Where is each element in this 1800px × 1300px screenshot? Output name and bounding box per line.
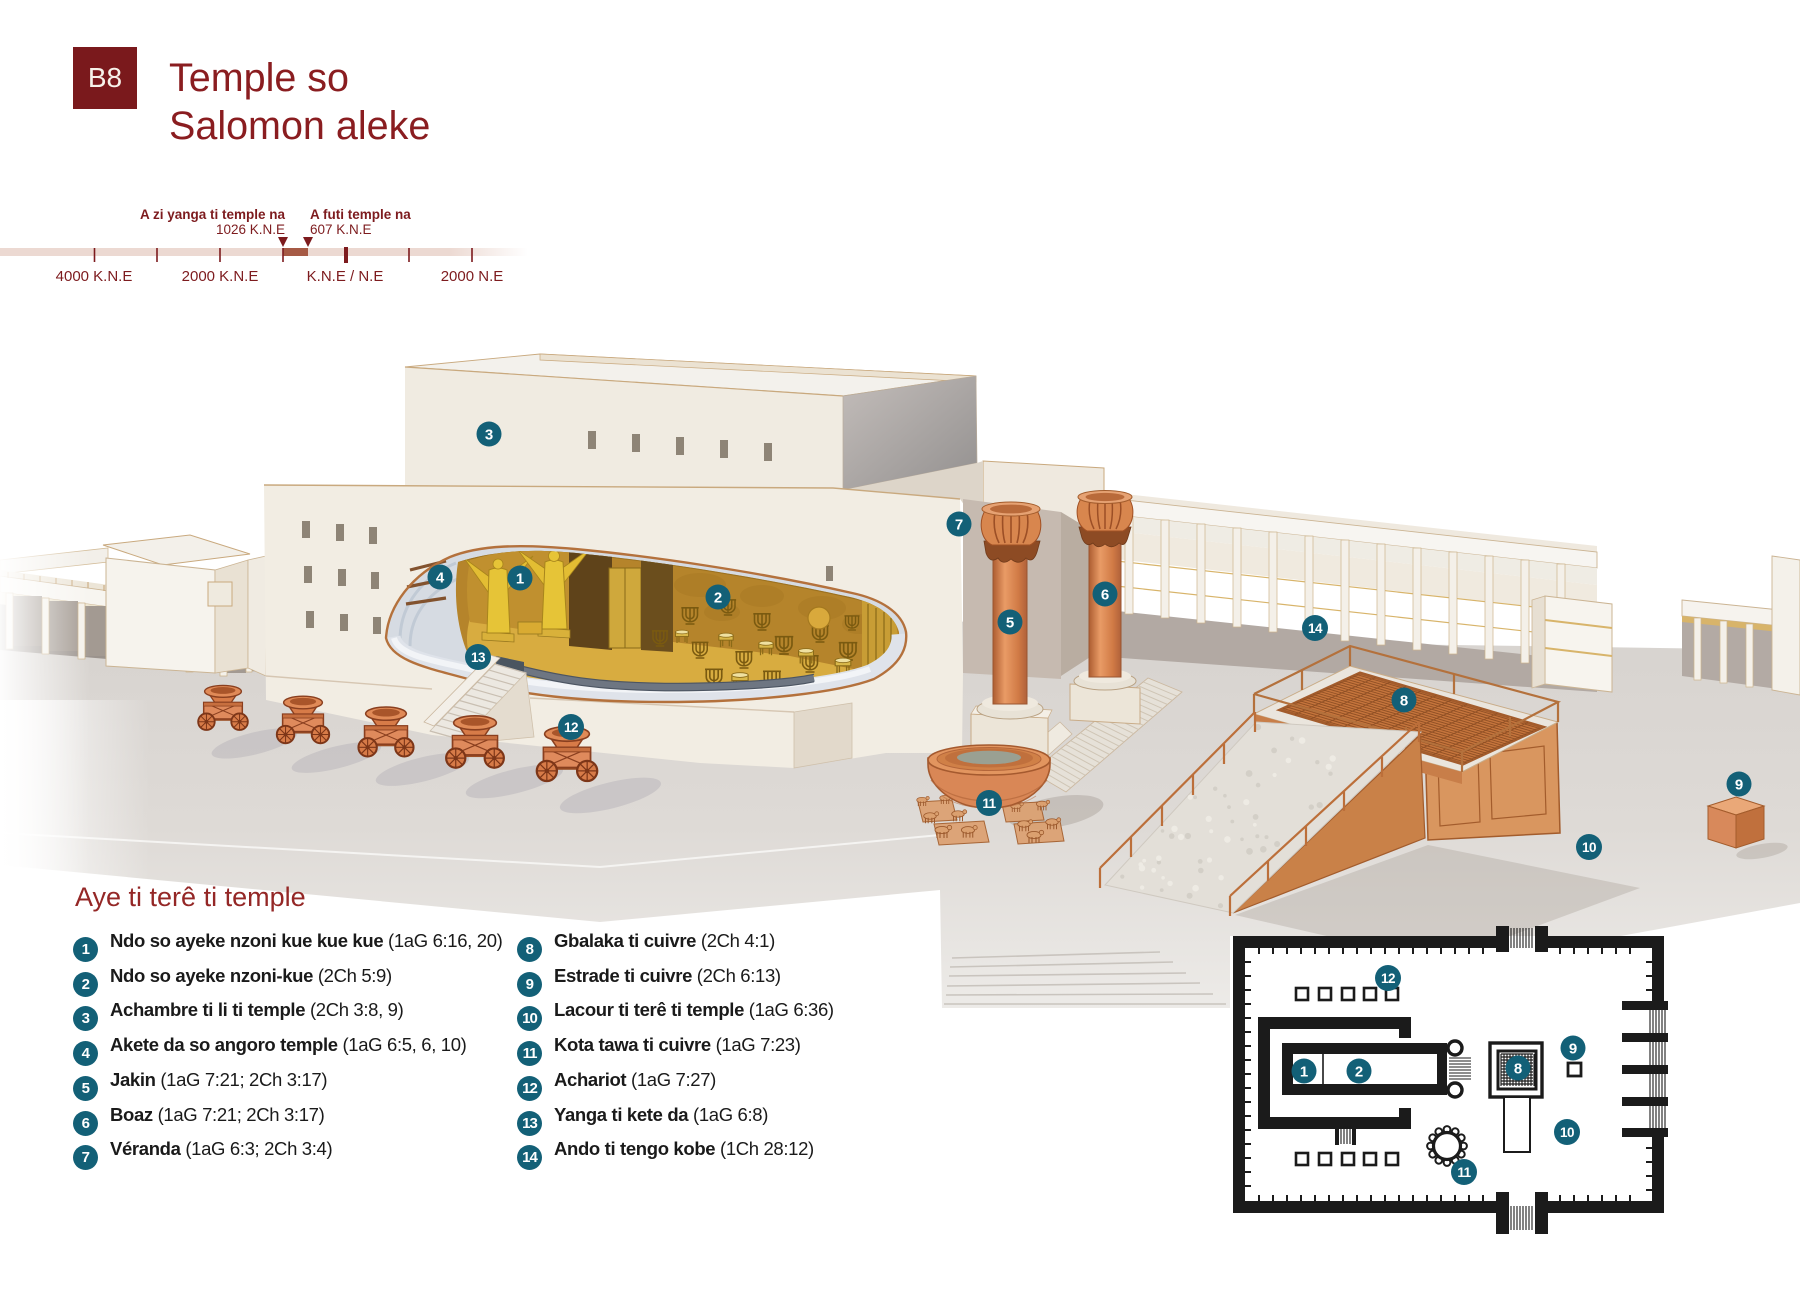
svg-text:2000 K.N.E: 2000 K.N.E <box>182 268 259 285</box>
svg-text:13: 13 <box>471 650 486 665</box>
svg-text:7: 7 <box>955 517 963 534</box>
svg-text:11: 11 <box>1457 1165 1471 1180</box>
svg-text:A futi temple na: A futi temple na <box>310 207 411 222</box>
svg-text:3: 3 <box>485 427 493 444</box>
svg-text:2: 2 <box>1355 1064 1363 1081</box>
svg-text:5: 5 <box>1006 615 1014 632</box>
svg-text:2000 N.E: 2000 N.E <box>441 268 504 285</box>
svg-text:8: 8 <box>1400 693 1408 710</box>
svg-text:9: 9 <box>1569 1041 1577 1058</box>
svg-text:2: 2 <box>714 590 722 607</box>
svg-text:9: 9 <box>1735 777 1743 794</box>
svg-text:6: 6 <box>1101 587 1109 604</box>
svg-text:11: 11 <box>982 796 996 811</box>
svg-text:10: 10 <box>1582 840 1596 855</box>
svg-text:4: 4 <box>436 570 445 587</box>
svg-text:8: 8 <box>1514 1061 1522 1078</box>
svg-text:12: 12 <box>564 720 578 735</box>
svg-text:K.N.E / N.E: K.N.E / N.E <box>307 268 384 285</box>
svg-text:14: 14 <box>1308 621 1323 636</box>
svg-text:4000 K.N.E: 4000 K.N.E <box>56 268 133 285</box>
svg-text:12: 12 <box>1381 971 1395 986</box>
svg-text:10: 10 <box>1560 1125 1574 1140</box>
svg-text:1026 K.N.E: 1026 K.N.E <box>216 222 285 237</box>
svg-text:1: 1 <box>1300 1064 1308 1081</box>
svg-text:607 K.N.E: 607 K.N.E <box>310 222 372 237</box>
svg-text:A zi yanga ti temple na: A zi yanga ti temple na <box>140 207 286 222</box>
svg-text:1: 1 <box>516 571 524 588</box>
